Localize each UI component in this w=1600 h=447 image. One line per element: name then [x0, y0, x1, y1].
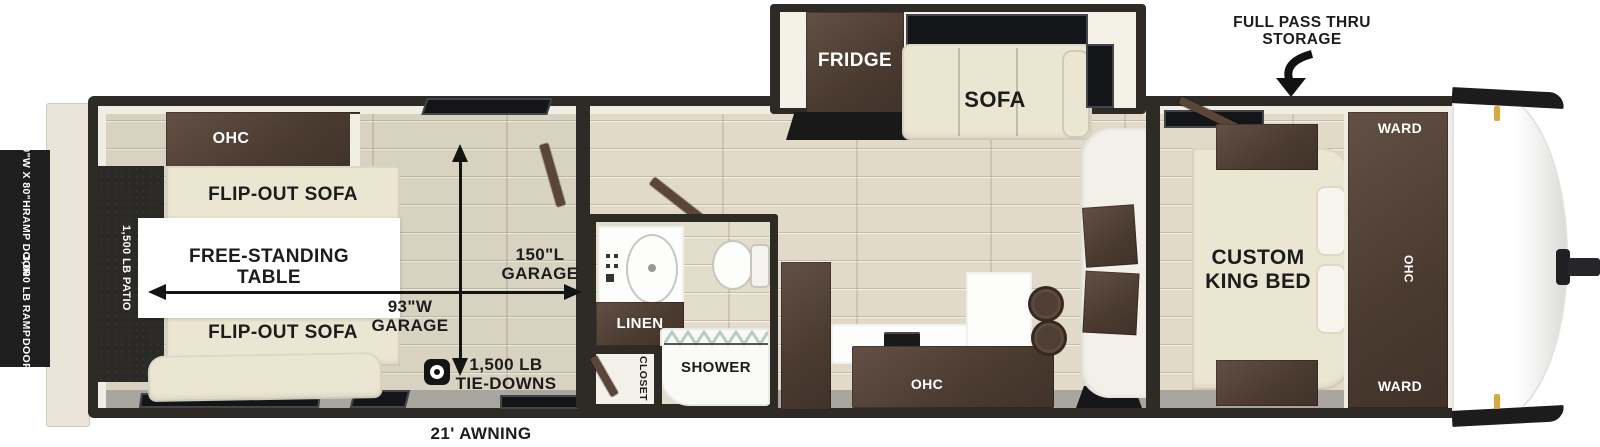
counter-stool [1031, 320, 1067, 356]
tie-downs-label: 1,500 LB TIE-DOWNS [454, 355, 558, 393]
bed-pillow [1316, 264, 1346, 334]
slideout-end-window [1086, 44, 1114, 108]
alcove-cabinet-upper [1082, 204, 1138, 267]
custom-king-bed-label: CUSTOM KING BED [1196, 246, 1320, 293]
sink-faucet [606, 254, 610, 258]
garage-ohc-label: OHC [176, 130, 286, 148]
kitchen-ohc-label: OHC [862, 376, 992, 394]
sofa-label: SOFA [935, 88, 1055, 113]
garage-top-window [421, 98, 553, 115]
garage-entry-opening [500, 395, 578, 409]
front-cap [1452, 92, 1568, 422]
garage-width-arrow [459, 160, 462, 360]
garage-bench-cushion [148, 352, 383, 402]
flip-out-sofa-bottom-label: FLIP-OUT SOFA [176, 322, 390, 343]
bedroom-partition-wall [1146, 106, 1160, 408]
alcove-cabinet-lower [1082, 271, 1139, 336]
garage-ohc-cabinet-edge [350, 114, 360, 166]
bed-pillow [1316, 186, 1346, 256]
toilet-tank [750, 244, 770, 288]
flip-out-sofa-top-label: FLIP-OUT SOFA [176, 184, 390, 205]
garage-length-label: 150"L GARAGE [490, 245, 590, 283]
toilet-bowl [712, 240, 754, 290]
marker-light-bottom [1494, 394, 1500, 409]
wardrobe-top-label: WARD [1362, 120, 1438, 138]
bedroom-nightstand-top [1216, 124, 1318, 170]
marker-light-top [1494, 106, 1500, 121]
fridge-label: FRIDGE [812, 50, 898, 72]
free-standing-table-label: FREE-STANDING TABLE [148, 246, 390, 289]
ramp-door-size-label: 90"W X 80"H RAMP DOOR [4, 154, 46, 262]
floorplan-canvas: 90"W X 80"H RAMP DOOR 3,000 LB RAMP DOOR… [0, 0, 1600, 447]
shower-label: SHOWER [668, 360, 764, 377]
garage-length-arrow [164, 291, 566, 294]
sink-drain [648, 264, 656, 272]
tie-down-icon [424, 359, 450, 385]
shower-glass-door [664, 330, 768, 346]
ramp-door-strip [46, 103, 90, 427]
wardrobe-bottom-label: WARD [1362, 378, 1438, 396]
bedroom-ohc-label: OHC [1396, 238, 1420, 300]
closet-label: CLOSET [632, 350, 652, 406]
pass-thru-storage-arrow [1268, 50, 1328, 98]
sofa-window [906, 14, 1088, 46]
bedroom-nightstand-bottom [1216, 360, 1318, 406]
pass-thru-storage-label: FULL PASS THRU STORAGE [1226, 14, 1378, 49]
awning-label: 21' AWNING [400, 424, 562, 443]
hitch-bar [1568, 258, 1600, 276]
kitchen-pantry [781, 262, 831, 410]
garage-width-label: 93"W GARAGE [364, 297, 456, 335]
counter-stool [1028, 286, 1064, 322]
ramp-door-weight-label: 3,000 LB RAMP DOOR [4, 262, 46, 364]
